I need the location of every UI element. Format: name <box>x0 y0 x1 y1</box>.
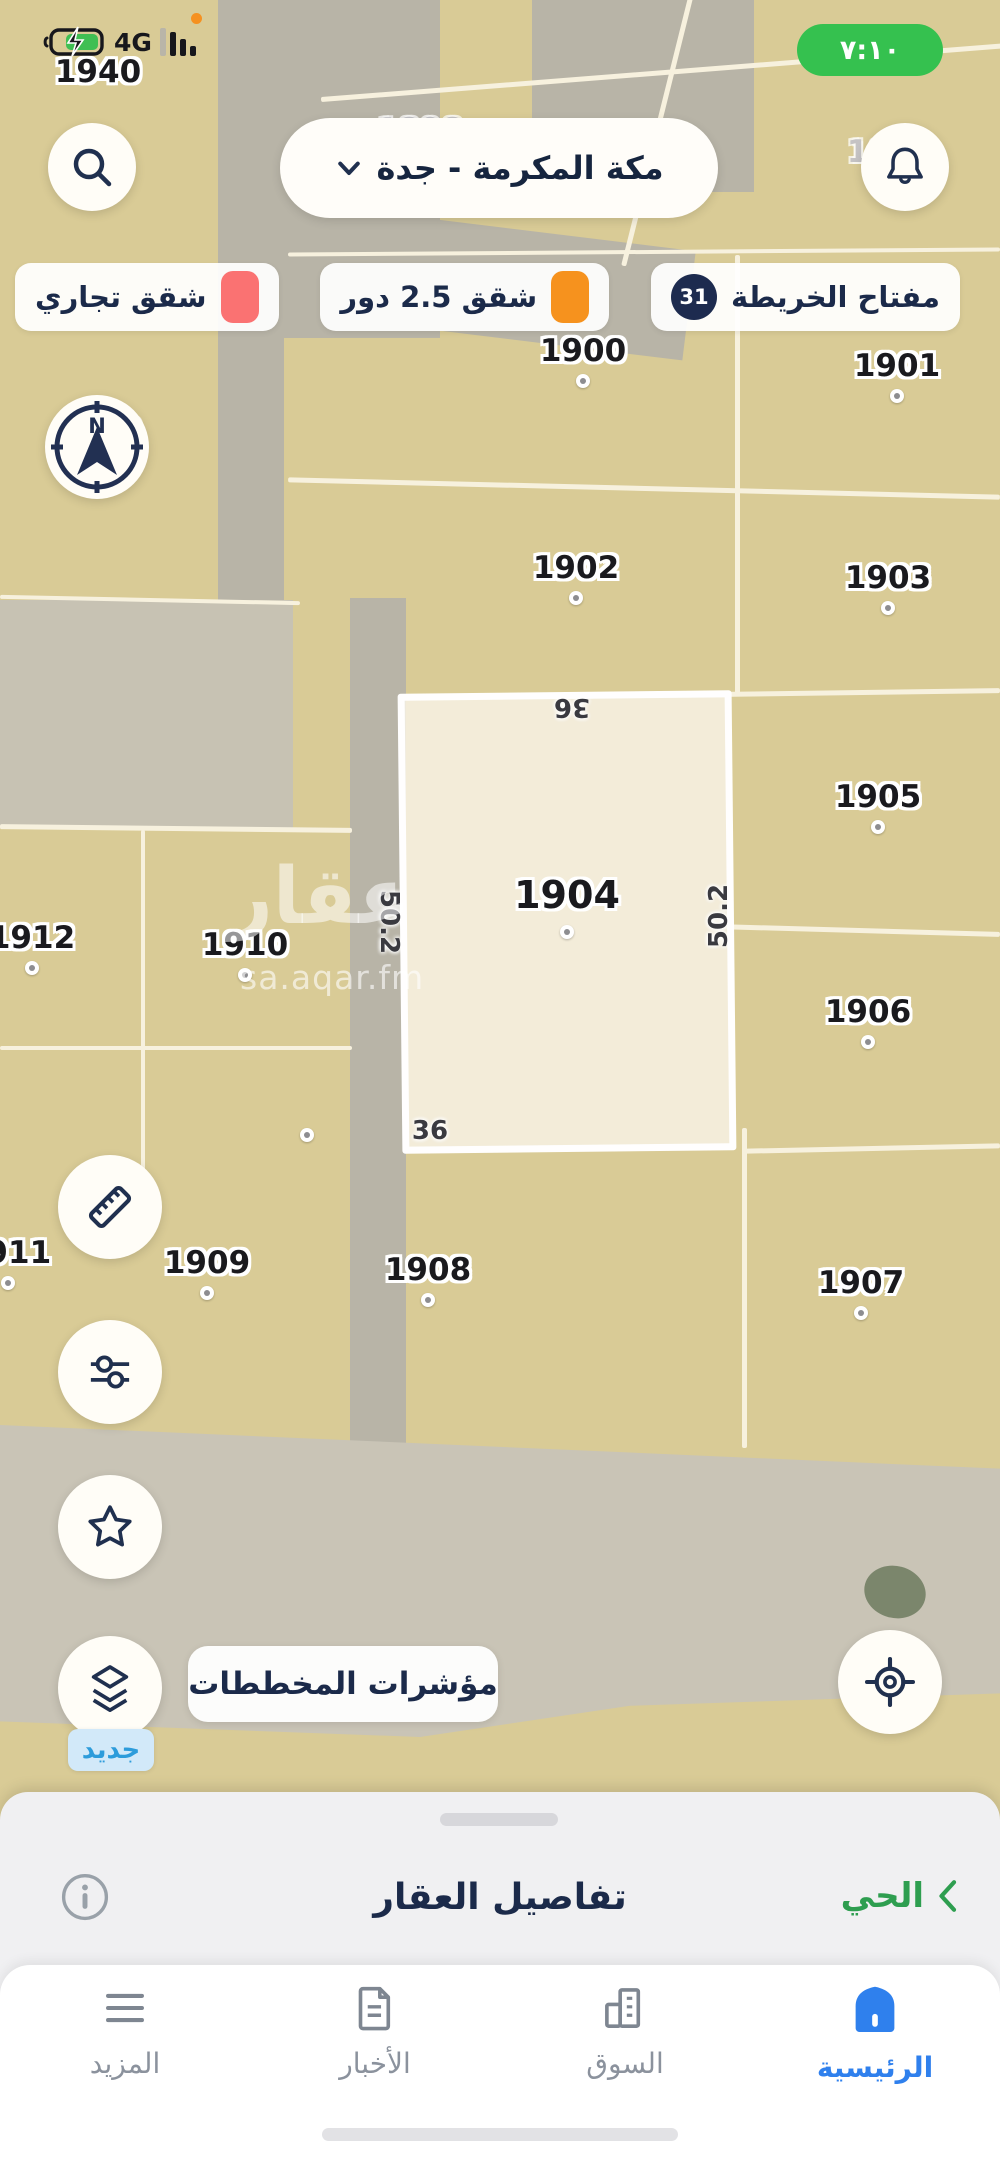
legend-chip-label: مفتاح الخريطة <box>731 280 940 314</box>
plot-dot <box>200 1286 214 1300</box>
newspaper-icon <box>346 1979 404 2037</box>
plot-label-1905[interactable]: 1905 <box>835 779 921 815</box>
plot-dot <box>560 925 574 939</box>
watermark-url: sa.aqar.fm <box>240 958 424 997</box>
notifications-button[interactable] <box>861 123 949 211</box>
plot-label-1902[interactable]: 1902 <box>533 550 619 586</box>
location-selector[interactable]: مكة المكرمة - جدة <box>280 118 718 218</box>
road-line <box>745 1143 1000 1153</box>
plot-dot <box>854 1306 868 1320</box>
crosshair-icon <box>861 1653 919 1711</box>
legend-chip-map-key[interactable]: مفتاح الخريطة 31 <box>651 263 960 331</box>
status-bar: 4G ٧:١٠ <box>0 0 1000 100</box>
chevron-down-icon <box>334 153 364 183</box>
filters-button[interactable] <box>58 1320 162 1424</box>
time-pill: ٧:١٠ <box>797 24 943 76</box>
plan-indicators-label: مؤشرات المخططات <box>188 1666 498 1702</box>
commercial-swatch <box>221 271 259 323</box>
plot-label-1908[interactable]: 1908 <box>385 1252 471 1288</box>
apartments-swatch <box>551 271 589 323</box>
map-area-sand-left <box>0 600 293 828</box>
compass-icon: N <box>45 395 149 499</box>
nav-item-news[interactable]: الأخبار <box>300 1979 450 2080</box>
corner-dot <box>300 1128 314 1142</box>
new-feature-badge: جديد <box>68 1729 154 1771</box>
plan-indicators-button[interactable]: مؤشرات المخططات <box>188 1646 498 1722</box>
info-icon <box>58 1870 112 1924</box>
plot-label-1903[interactable]: 1903 <box>845 560 931 596</box>
new-badge-label: جديد <box>82 1735 141 1765</box>
menu-icon <box>96 1979 154 2037</box>
drag-handle[interactable] <box>440 1813 558 1826</box>
plot-dot <box>569 591 583 605</box>
home-icon <box>844 1979 906 2041</box>
nav-label: المزيد <box>90 2047 160 2080</box>
chevron-left-icon <box>934 1878 964 1914</box>
plot-dot <box>1 1276 15 1290</box>
nav-item-market[interactable]: السوق <box>550 1979 700 2080</box>
search-button[interactable] <box>48 123 136 211</box>
favorites-button[interactable] <box>58 1475 162 1579</box>
star-icon <box>82 1499 138 1555</box>
legend-chip-commercial[interactable]: شقق تجاري <box>15 263 279 331</box>
district-link[interactable]: الحي <box>841 1876 964 1916</box>
nav-item-more[interactable]: المزيد <box>50 1979 200 2080</box>
plot-label-1912[interactable]: 1912 <box>0 920 75 956</box>
road-line <box>0 824 352 833</box>
network-type-label: 4G <box>114 28 152 57</box>
nav-item-home[interactable]: الرئيسية <box>800 1979 950 2084</box>
battery-icon <box>42 26 106 58</box>
plot-dot <box>421 1293 435 1307</box>
info-button[interactable] <box>58 1870 112 1924</box>
plot-dot <box>861 1035 875 1049</box>
road-line <box>722 688 1000 697</box>
plot-label-1906[interactable]: 1906 <box>825 994 911 1030</box>
ruler-icon <box>81 1178 139 1236</box>
plot-label-1911[interactable]: 1911 <box>0 1235 51 1271</box>
layers-button[interactable] <box>58 1636 162 1740</box>
road-line <box>0 1046 352 1050</box>
road-line <box>288 477 1000 499</box>
plot-dot <box>25 961 39 975</box>
buildings-icon <box>596 1979 654 2037</box>
road-line <box>718 924 1000 937</box>
plot-dot <box>871 820 885 834</box>
watermark-logo: عقار <box>228 852 412 942</box>
highlighted-plot-1904[interactable] <box>398 690 737 1153</box>
plot-label-1901[interactable]: 1901 <box>854 348 940 384</box>
plot-label-1909[interactable]: 1909 <box>164 1245 250 1281</box>
legend-chip-apartments[interactable]: شقق 2.5 دور <box>320 263 609 331</box>
plot-dot <box>881 601 895 615</box>
dimension-label: 36 <box>554 692 590 722</box>
plot-label-1907[interactable]: 1907 <box>818 1265 904 1301</box>
compass-button[interactable]: N <box>45 395 149 499</box>
dimension-label: 36 <box>412 1116 448 1146</box>
legend-chip-label: شقق تجاري <box>35 280 207 314</box>
district-label: الحي <box>841 1876 924 1916</box>
map-legend: شقق تجاري شقق 2.5 دور مفتاح الخريطة 31 <box>15 263 960 331</box>
layers-icon <box>82 1660 138 1716</box>
map-key-count-badge: 31 <box>671 274 717 320</box>
nav-label: الأخبار <box>339 2047 411 2080</box>
location-label: مكة المكرمة - جدة <box>376 149 663 187</box>
plot-dot <box>576 374 590 388</box>
search-icon <box>68 143 116 191</box>
nav-label: السوق <box>586 2047 663 2080</box>
road-line <box>742 1128 747 1448</box>
measure-button[interactable] <box>58 1155 162 1259</box>
plot-label-1904[interactable]: 1904 <box>514 873 620 917</box>
bell-icon <box>880 142 930 192</box>
nav-label: الرئيسية <box>817 2051 933 2084</box>
plot-dot <box>890 389 904 403</box>
home-indicator[interactable] <box>322 2128 678 2141</box>
locate-me-button[interactable] <box>838 1630 942 1734</box>
plot-label-1900[interactable]: 1900 <box>540 333 626 369</box>
signal-bars-icon <box>160 28 196 56</box>
notification-dot <box>191 13 202 24</box>
legend-chip-label: شقق 2.5 دور <box>340 280 537 314</box>
app-screen: 363650.250.2 194018981899193919001901190… <box>0 0 1000 2162</box>
sliders-icon <box>83 1345 137 1399</box>
dimension-label: 50.2 <box>704 884 734 948</box>
